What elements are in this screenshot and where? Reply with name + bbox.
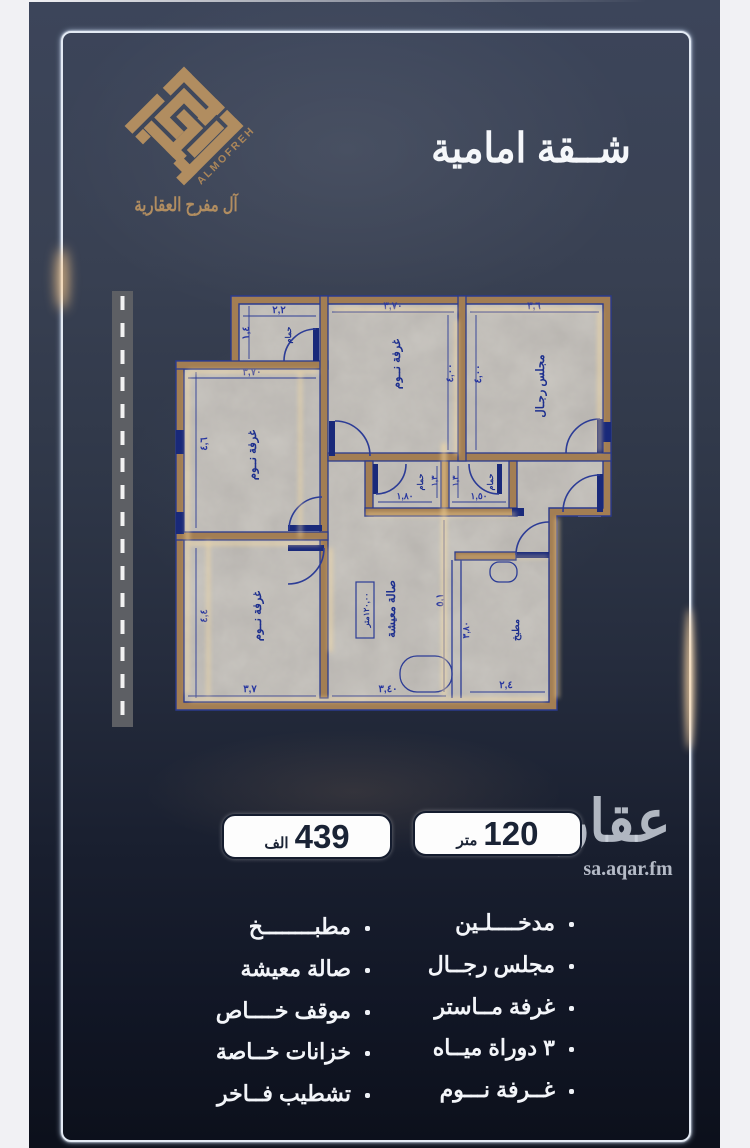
svg-text:٤,٦: ٤,٦ <box>199 437 210 451</box>
svg-text:١٢٠,٠٠متر: ١٢٠,٠٠متر <box>362 593 372 629</box>
svg-text:غرفة نــوم: غرفة نــوم <box>247 429 260 480</box>
svg-text:١,٨٠: ١,٨٠ <box>396 491 413 501</box>
svg-text:غرفة نــوم: غرفة نــوم <box>252 590 265 641</box>
svg-text:٤,٠٠: ٤,٠٠ <box>473 365 484 384</box>
svg-text:صالة معيشة: صالة معيشة <box>385 580 398 638</box>
svg-text:مجلس رجـال: مجلس رجـال <box>534 354 548 417</box>
svg-text:٣,٧: ٣,٧ <box>243 684 257 695</box>
svg-text:٢,٢: ٢,٢ <box>272 305 286 316</box>
svg-text:٣,٤٠: ٣,٤٠ <box>379 684 398 695</box>
svg-text:حمام: حمام <box>486 473 496 490</box>
svg-text:٢,٤: ٢,٤ <box>499 680 513 691</box>
svg-text:١,٥٠: ١,٥٠ <box>470 491 487 501</box>
svg-text:مطبخ: مطبخ <box>511 619 522 641</box>
svg-text:٣,٨٠: ٣,٨٠ <box>461 621 471 638</box>
svg-text:غرفة نــوم: غرفة نــوم <box>391 338 404 389</box>
svg-text:٤,٠٠: ٤,٠٠ <box>445 364 456 383</box>
svg-text:١,٣: ١,٣ <box>430 475 439 487</box>
svg-text:١,٣: ١,٣ <box>451 475 460 487</box>
svg-text:حمام: حمام <box>416 473 426 490</box>
svg-text:١,٤: ١,٤ <box>241 326 252 340</box>
svg-text:حمام: حمام <box>284 326 294 343</box>
